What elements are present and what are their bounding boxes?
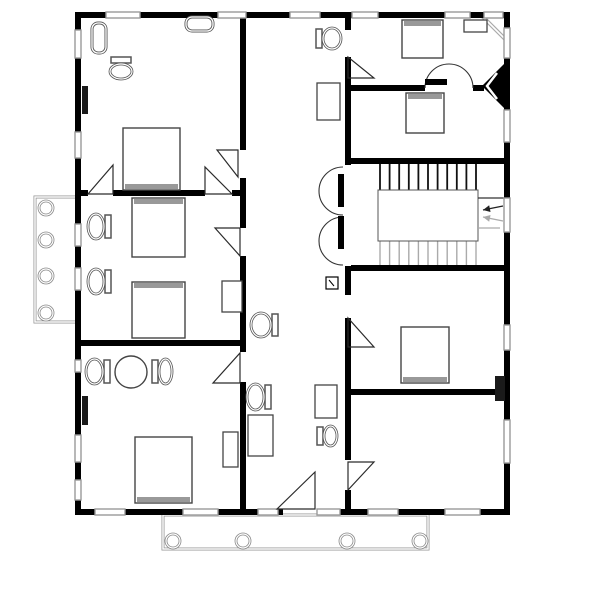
bed (132, 282, 185, 338)
cabinet (223, 432, 238, 467)
toilet-tank (152, 360, 158, 383)
window (183, 509, 218, 515)
window (484, 12, 503, 18)
wall-segment (125, 509, 183, 515)
toilet-tank (316, 29, 322, 48)
window (75, 480, 81, 500)
window (75, 224, 81, 246)
wall-segment (351, 158, 504, 164)
chimney-block (82, 396, 88, 425)
door-leaf (338, 174, 344, 207)
wall-segment (240, 12, 246, 150)
window (317, 509, 340, 515)
wall-segment (81, 340, 240, 346)
floor-plan-page (0, 0, 604, 604)
wall-segment (75, 500, 81, 515)
floor-plan-drawing (0, 0, 604, 604)
window (445, 12, 470, 18)
window (106, 12, 140, 18)
chimney-block (495, 376, 505, 401)
wall-segment (75, 12, 81, 30)
window (352, 12, 378, 18)
window (95, 509, 125, 515)
wall-segment (340, 509, 368, 515)
bed (135, 437, 192, 503)
wall-segment (345, 12, 351, 30)
wall-segment (75, 58, 81, 132)
window (75, 268, 81, 290)
round-table (115, 356, 147, 388)
window (75, 435, 81, 462)
wall-segment (218, 509, 258, 515)
bed-headboard (137, 497, 190, 502)
door-leaf (338, 216, 344, 249)
window (504, 325, 510, 350)
wall-segment (504, 12, 510, 28)
cabinet (464, 20, 487, 32)
toilet-tank (317, 427, 323, 445)
chimney-block (82, 86, 88, 114)
sink-fixture (92, 23, 106, 53)
bed (132, 198, 185, 257)
wall-segment (240, 178, 246, 228)
wall-segment (345, 490, 351, 515)
wall-segment (240, 382, 246, 515)
bed-headboard (134, 199, 183, 204)
cabinet (315, 385, 337, 418)
wall-segment (75, 462, 81, 480)
bed-headboard (408, 94, 442, 99)
window (445, 509, 480, 515)
wall-segment (232, 190, 240, 196)
window (290, 12, 320, 18)
bed-headboard (404, 21, 441, 26)
cabinet (317, 83, 340, 120)
toilet-tank (105, 215, 111, 238)
wall-segment (81, 190, 88, 196)
wall-segment (246, 12, 290, 18)
cabinet (248, 415, 273, 456)
bed-headboard (403, 377, 447, 382)
bed (123, 128, 180, 190)
wall-segment (75, 158, 81, 224)
toilet-tank (105, 270, 111, 293)
wall-segment (351, 265, 504, 271)
wall-segment (504, 232, 510, 325)
wall-segment (504, 142, 510, 198)
wall-segment (470, 12, 484, 18)
toilet-tank (272, 314, 278, 336)
cabinet (222, 281, 242, 312)
door-leaf (425, 79, 447, 85)
window (504, 198, 510, 232)
toilet-tank (265, 385, 271, 409)
window (75, 360, 81, 372)
wall-segment (398, 509, 445, 515)
window (504, 420, 510, 463)
stair-landing (378, 190, 478, 241)
sink-fixture (186, 17, 213, 31)
window (75, 30, 81, 58)
window (218, 12, 246, 18)
bed (401, 327, 449, 383)
window (75, 132, 81, 158)
bed-headboard (125, 184, 178, 189)
window (504, 110, 510, 142)
wall-segment (113, 190, 205, 196)
window (504, 28, 510, 58)
window (258, 509, 278, 515)
wall-segment (75, 246, 81, 268)
wall-segment (75, 290, 81, 360)
wall-segment (378, 12, 445, 18)
toilet-tank (111, 57, 131, 63)
wall-segment (345, 266, 351, 295)
toilet-tank (104, 360, 110, 383)
window (368, 509, 398, 515)
wall-segment (278, 509, 283, 515)
wall-segment (351, 389, 504, 395)
wall-segment (504, 58, 510, 110)
bed-headboard (134, 283, 183, 288)
wall-segment (504, 463, 510, 515)
wall-segment (75, 372, 81, 435)
wall-segment (351, 85, 425, 91)
